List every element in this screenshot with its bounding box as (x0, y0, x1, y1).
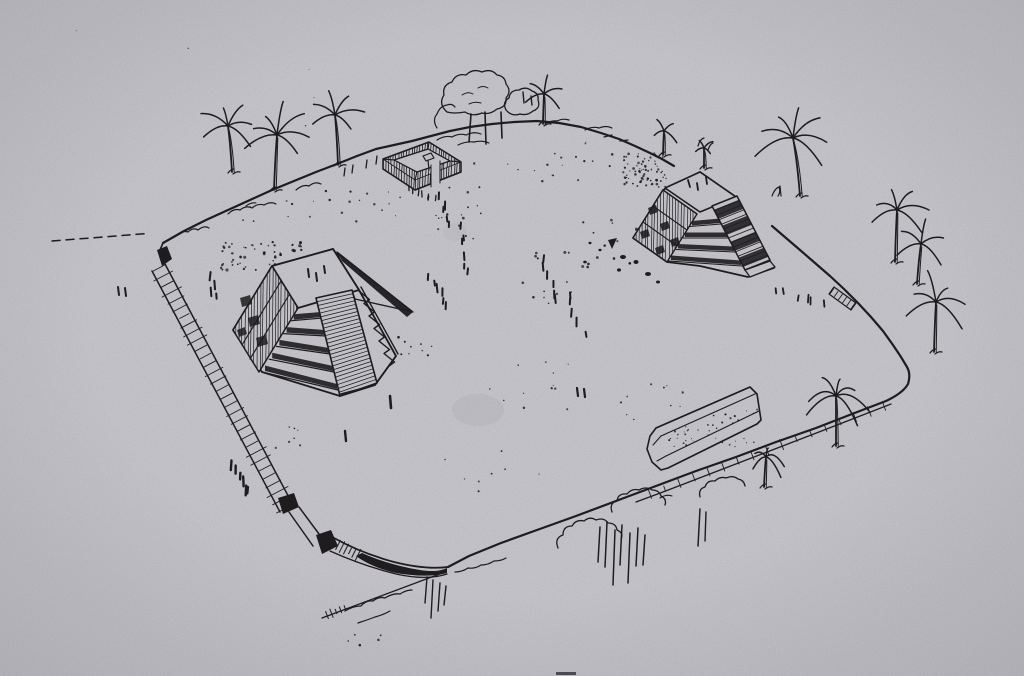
paper-grain (0, 0, 1024, 676)
archaeological-site-drawing (0, 0, 1024, 676)
drawing-canvas (0, 0, 1024, 676)
